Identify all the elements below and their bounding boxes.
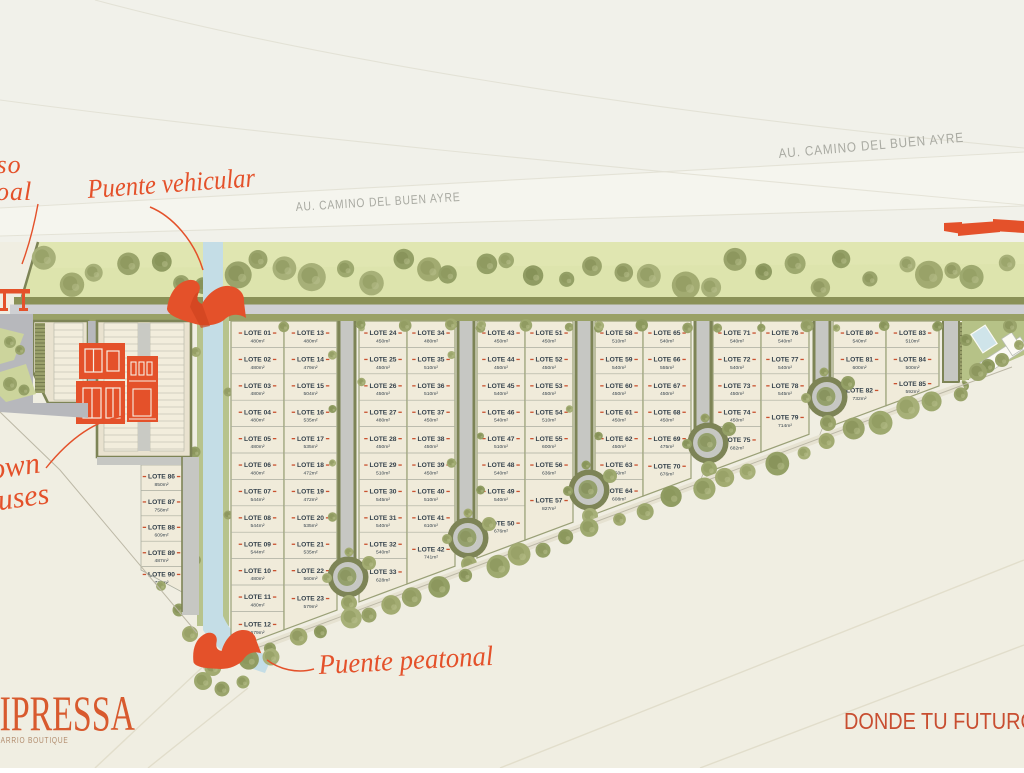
svg-text:LOTE 24: LOTE 24 (370, 330, 397, 337)
svg-text:LOTE 44: LOTE 44 (488, 357, 515, 364)
svg-text:827m²: 827m² (542, 506, 556, 512)
svg-text:LOTE 77: LOTE 77 (772, 357, 799, 364)
svg-text:480m²: 480m² (251, 444, 265, 450)
svg-text:LOTE 13: LOTE 13 (297, 330, 324, 337)
svg-text:LOTE 89: LOTE 89 (148, 550, 175, 557)
svg-text:LOTE 10: LOTE 10 (244, 568, 271, 575)
svg-text:540m²: 540m² (376, 550, 390, 556)
svg-text:480m²: 480m² (251, 470, 265, 476)
svg-text:LOTE 16: LOTE 16 (297, 409, 324, 416)
svg-text:LOTE 48: LOTE 48 (488, 462, 515, 469)
svg-text:609m²: 609m² (155, 533, 169, 539)
svg-text:LOTE 67: LOTE 67 (654, 383, 681, 390)
svg-text:480m²: 480m² (251, 418, 265, 424)
svg-text:535m²: 535m² (304, 550, 318, 556)
svg-text:472m²: 472m² (304, 497, 318, 503)
svg-text:LOTE 60: LOTE 60 (606, 383, 633, 390)
svg-text:450m²: 450m² (612, 444, 626, 450)
svg-text:LOTE 18: LOTE 18 (297, 462, 324, 469)
svg-text:LOTE 08: LOTE 08 (244, 515, 271, 522)
svg-text:LOTE 28: LOTE 28 (370, 436, 397, 443)
svg-text:LOTE 40: LOTE 40 (418, 489, 445, 496)
svg-text:487m²: 487m² (155, 558, 169, 564)
svg-text:LOTE 32: LOTE 32 (370, 541, 397, 548)
svg-text:510m²: 510m² (494, 444, 508, 450)
svg-text:LOTE 43: LOTE 43 (488, 330, 515, 337)
svg-text:480m²: 480m² (424, 338, 438, 344)
svg-text:592m²: 592m² (906, 389, 920, 395)
svg-text:LOTE 85: LOTE 85 (899, 381, 926, 388)
svg-text:540m²: 540m² (778, 365, 792, 371)
svg-text:608m²: 608m² (612, 496, 626, 502)
svg-text:480m²: 480m² (251, 338, 265, 344)
svg-text:oal: oal (0, 177, 32, 206)
svg-text:LOTE 61: LOTE 61 (606, 409, 633, 416)
svg-text:545m²: 545m² (778, 391, 792, 397)
svg-text:LOTE 27: LOTE 27 (370, 409, 397, 416)
svg-text:540m²: 540m² (612, 365, 626, 371)
svg-text:758m²: 758m² (155, 507, 169, 513)
svg-text:LOTE 62: LOTE 62 (606, 436, 633, 443)
svg-text:LOTE 34: LOTE 34 (418, 330, 445, 337)
svg-text:600m²: 600m² (853, 365, 867, 371)
svg-text:510m²: 510m² (424, 365, 438, 371)
svg-text:LOTE 74: LOTE 74 (724, 409, 751, 416)
svg-text:850m²: 850m² (155, 482, 169, 488)
svg-text:450m²: 450m² (542, 338, 556, 344)
svg-text:540m²: 540m² (660, 338, 674, 344)
svg-text:LOTE 42: LOTE 42 (418, 547, 445, 554)
svg-text:LOTE 83: LOTE 83 (899, 330, 926, 337)
svg-text:450m²: 450m² (660, 418, 674, 424)
svg-text:LOTE 69: LOTE 69 (654, 436, 681, 443)
svg-text:LOTE 15: LOTE 15 (297, 383, 324, 390)
svg-text:LOTE 72: LOTE 72 (724, 357, 751, 364)
svg-text:540m²: 540m² (778, 338, 792, 344)
svg-text:450m²: 450m² (660, 391, 674, 397)
svg-text:535m²: 535m² (304, 418, 318, 424)
svg-text:480m²: 480m² (251, 576, 265, 582)
svg-text:LOTE 25: LOTE 25 (370, 357, 397, 364)
svg-text:LOTE 65: LOTE 65 (654, 330, 681, 337)
svg-text:LOTE 80: LOTE 80 (846, 330, 873, 337)
svg-text:450m²: 450m² (542, 391, 556, 397)
svg-text:LOTE 06: LOTE 06 (244, 462, 271, 469)
svg-text:LOTE 29: LOTE 29 (370, 462, 397, 469)
svg-text:LOTE 90: LOTE 90 (148, 572, 175, 579)
svg-text:eso: eso (0, 150, 22, 179)
svg-text:600m²: 600m² (542, 444, 556, 450)
svg-text:LOTE 57: LOTE 57 (536, 498, 563, 505)
svg-text:500m²: 500m² (906, 365, 920, 371)
svg-text:LOTE 14: LOTE 14 (297, 357, 324, 364)
svg-text:LOTE 52: LOTE 52 (536, 357, 563, 364)
svg-text:450m²: 450m² (376, 444, 390, 450)
svg-text:450m²: 450m² (542, 365, 556, 371)
svg-text:LOTE 11: LOTE 11 (244, 594, 271, 601)
svg-text:676m²: 676m² (494, 529, 508, 535)
svg-text:732m²: 732m² (853, 396, 867, 402)
svg-text:LOTE 51: LOTE 51 (536, 330, 563, 337)
svg-text:540m²: 540m² (494, 470, 508, 476)
svg-text:LOTE 31: LOTE 31 (370, 515, 397, 522)
svg-text:450m²: 450m² (376, 338, 390, 344)
svg-text:LOTE 49: LOTE 49 (488, 489, 515, 496)
svg-text:480m²: 480m² (251, 602, 265, 608)
svg-text:LOTE 09: LOTE 09 (244, 541, 271, 548)
svg-text:540m²: 540m² (494, 418, 508, 424)
svg-text:LOTE 79: LOTE 79 (772, 415, 799, 422)
svg-text:540m²: 540m² (494, 497, 508, 503)
svg-text:LOTE 20: LOTE 20 (297, 515, 324, 522)
svg-text:DONDE TU FUTURO: DONDE TU FUTURO (844, 708, 1024, 734)
svg-text:LOTE 73: LOTE 73 (724, 383, 751, 390)
svg-text:450m²: 450m² (494, 338, 508, 344)
svg-text:682m²: 682m² (730, 445, 744, 451)
svg-text:LOTE 66: LOTE 66 (654, 357, 681, 364)
svg-text:LOTE 12: LOTE 12 (244, 622, 271, 629)
svg-text:540m²: 540m² (853, 338, 867, 344)
svg-text:LOTE 03: LOTE 03 (244, 383, 271, 390)
svg-text:610m²: 610m² (424, 523, 438, 529)
svg-text:480m²: 480m² (376, 418, 390, 424)
svg-text:LOTE 76: LOTE 76 (772, 330, 799, 337)
svg-text:480m²: 480m² (251, 365, 265, 371)
svg-text:450m²: 450m² (612, 418, 626, 424)
svg-text:LOTE 19: LOTE 19 (297, 489, 324, 496)
svg-text:LOTE 37: LOTE 37 (418, 409, 445, 416)
svg-text:450m²: 450m² (376, 365, 390, 371)
svg-text:540m²: 540m² (730, 365, 744, 371)
svg-text:535m²: 535m² (304, 444, 318, 450)
svg-text:LOTE 23: LOTE 23 (297, 596, 324, 603)
svg-text:450m²: 450m² (424, 470, 438, 476)
svg-text:LOTE 78: LOTE 78 (772, 383, 799, 390)
svg-text:LOTE 71: LOTE 71 (724, 330, 751, 337)
svg-text:BARRIO BOUTIQUE: BARRIO BOUTIQUE (0, 735, 69, 745)
svg-text:560m²: 560m² (304, 576, 318, 582)
svg-text:LOTE 21: LOTE 21 (297, 541, 324, 548)
svg-text:LOTE 17: LOTE 17 (297, 436, 324, 443)
svg-text:510m²: 510m² (542, 418, 556, 424)
svg-text:LOTE 30: LOTE 30 (370, 489, 397, 496)
svg-text:LOTE 41: LOTE 41 (418, 515, 445, 522)
svg-text:CIPRESSA: CIPRESSA (0, 685, 135, 741)
svg-text:450m²: 450m² (424, 444, 438, 450)
svg-text:676m²: 676m² (660, 472, 674, 478)
svg-text:480m²: 480m² (251, 391, 265, 397)
svg-text:LOTE 47: LOTE 47 (488, 436, 515, 443)
svg-text:450m²: 450m² (494, 365, 508, 371)
svg-text:450m²: 450m² (376, 391, 390, 397)
svg-text:714m²: 714m² (778, 423, 792, 429)
svg-text:504m²: 504m² (304, 391, 318, 397)
svg-text:510m²: 510m² (424, 497, 438, 503)
svg-text:544m²: 544m² (251, 497, 265, 503)
svg-text:LOTE 64: LOTE 64 (606, 488, 633, 495)
svg-text:450m²: 450m² (730, 391, 744, 397)
svg-text:LOTE 63: LOTE 63 (606, 462, 633, 469)
svg-text:636m²: 636m² (542, 470, 556, 476)
svg-text:LOTE 26: LOTE 26 (370, 383, 397, 390)
svg-text:510m²: 510m² (376, 470, 390, 476)
svg-text:LOTE 46: LOTE 46 (488, 409, 515, 416)
svg-text:450m²: 450m² (730, 418, 744, 424)
svg-text:LOTE 87: LOTE 87 (148, 499, 175, 506)
svg-text:544m²: 544m² (251, 523, 265, 529)
svg-text:741m²: 741m² (424, 555, 438, 561)
svg-text:LOTE 01: LOTE 01 (244, 330, 271, 337)
svg-text:544m²: 544m² (251, 550, 265, 556)
svg-text:540m²: 540m² (376, 523, 390, 529)
svg-text:450m²: 450m² (612, 391, 626, 397)
svg-text:540m²: 540m² (494, 391, 508, 397)
svg-text:LOTE 86: LOTE 86 (148, 474, 175, 481)
svg-text:LOTE 54: LOTE 54 (536, 409, 563, 416)
svg-text:LOTE 81: LOTE 81 (846, 357, 873, 364)
svg-text:LOTE 56: LOTE 56 (536, 462, 563, 469)
svg-text:540m²: 540m² (730, 338, 744, 344)
svg-text:LOTE 35: LOTE 35 (418, 357, 445, 364)
svg-text:LOTE 59: LOTE 59 (606, 357, 633, 364)
svg-text:LOTE 88: LOTE 88 (148, 525, 175, 532)
svg-text:510m²: 510m² (612, 338, 626, 344)
svg-text:LOTE 38: LOTE 38 (418, 436, 445, 443)
svg-text:LOTE 05: LOTE 05 (244, 436, 271, 443)
svg-text:479m²: 479m² (304, 365, 318, 371)
svg-text:545m²: 545m² (376, 497, 390, 503)
svg-text:475m²: 475m² (660, 444, 674, 450)
svg-text:535m²: 535m² (304, 523, 318, 529)
svg-text:LOTE 68: LOTE 68 (654, 409, 681, 416)
svg-text:LOTE 04: LOTE 04 (244, 409, 271, 416)
svg-text:510m²: 510m² (906, 338, 920, 344)
svg-text:LOTE 84: LOTE 84 (899, 357, 926, 364)
svg-text:LOTE 55: LOTE 55 (536, 436, 563, 443)
svg-text:LOTE 70: LOTE 70 (654, 463, 681, 470)
svg-text:472m²: 472m² (304, 470, 318, 476)
svg-text:LOTE 53: LOTE 53 (536, 383, 563, 390)
svg-text:628m²: 628m² (376, 577, 390, 583)
svg-text:LOTE 39: LOTE 39 (418, 462, 445, 469)
svg-text:LOTE 45: LOTE 45 (488, 383, 515, 390)
svg-text:LOTE 07: LOTE 07 (244, 489, 271, 496)
svg-text:450m²: 450m² (424, 418, 438, 424)
svg-text:579m²: 579m² (304, 604, 318, 610)
svg-text:LOTE 22: LOTE 22 (297, 568, 324, 575)
svg-text:LOTE 36: LOTE 36 (418, 383, 445, 390)
svg-text:480m²: 480m² (304, 338, 318, 344)
svg-text:LOTE 58: LOTE 58 (606, 330, 633, 337)
svg-text:555m²: 555m² (660, 365, 674, 371)
svg-text:LOTE 02: LOTE 02 (244, 357, 271, 364)
svg-text:510m²: 510m² (424, 391, 438, 397)
svg-text:LOTE 33: LOTE 33 (370, 569, 397, 576)
